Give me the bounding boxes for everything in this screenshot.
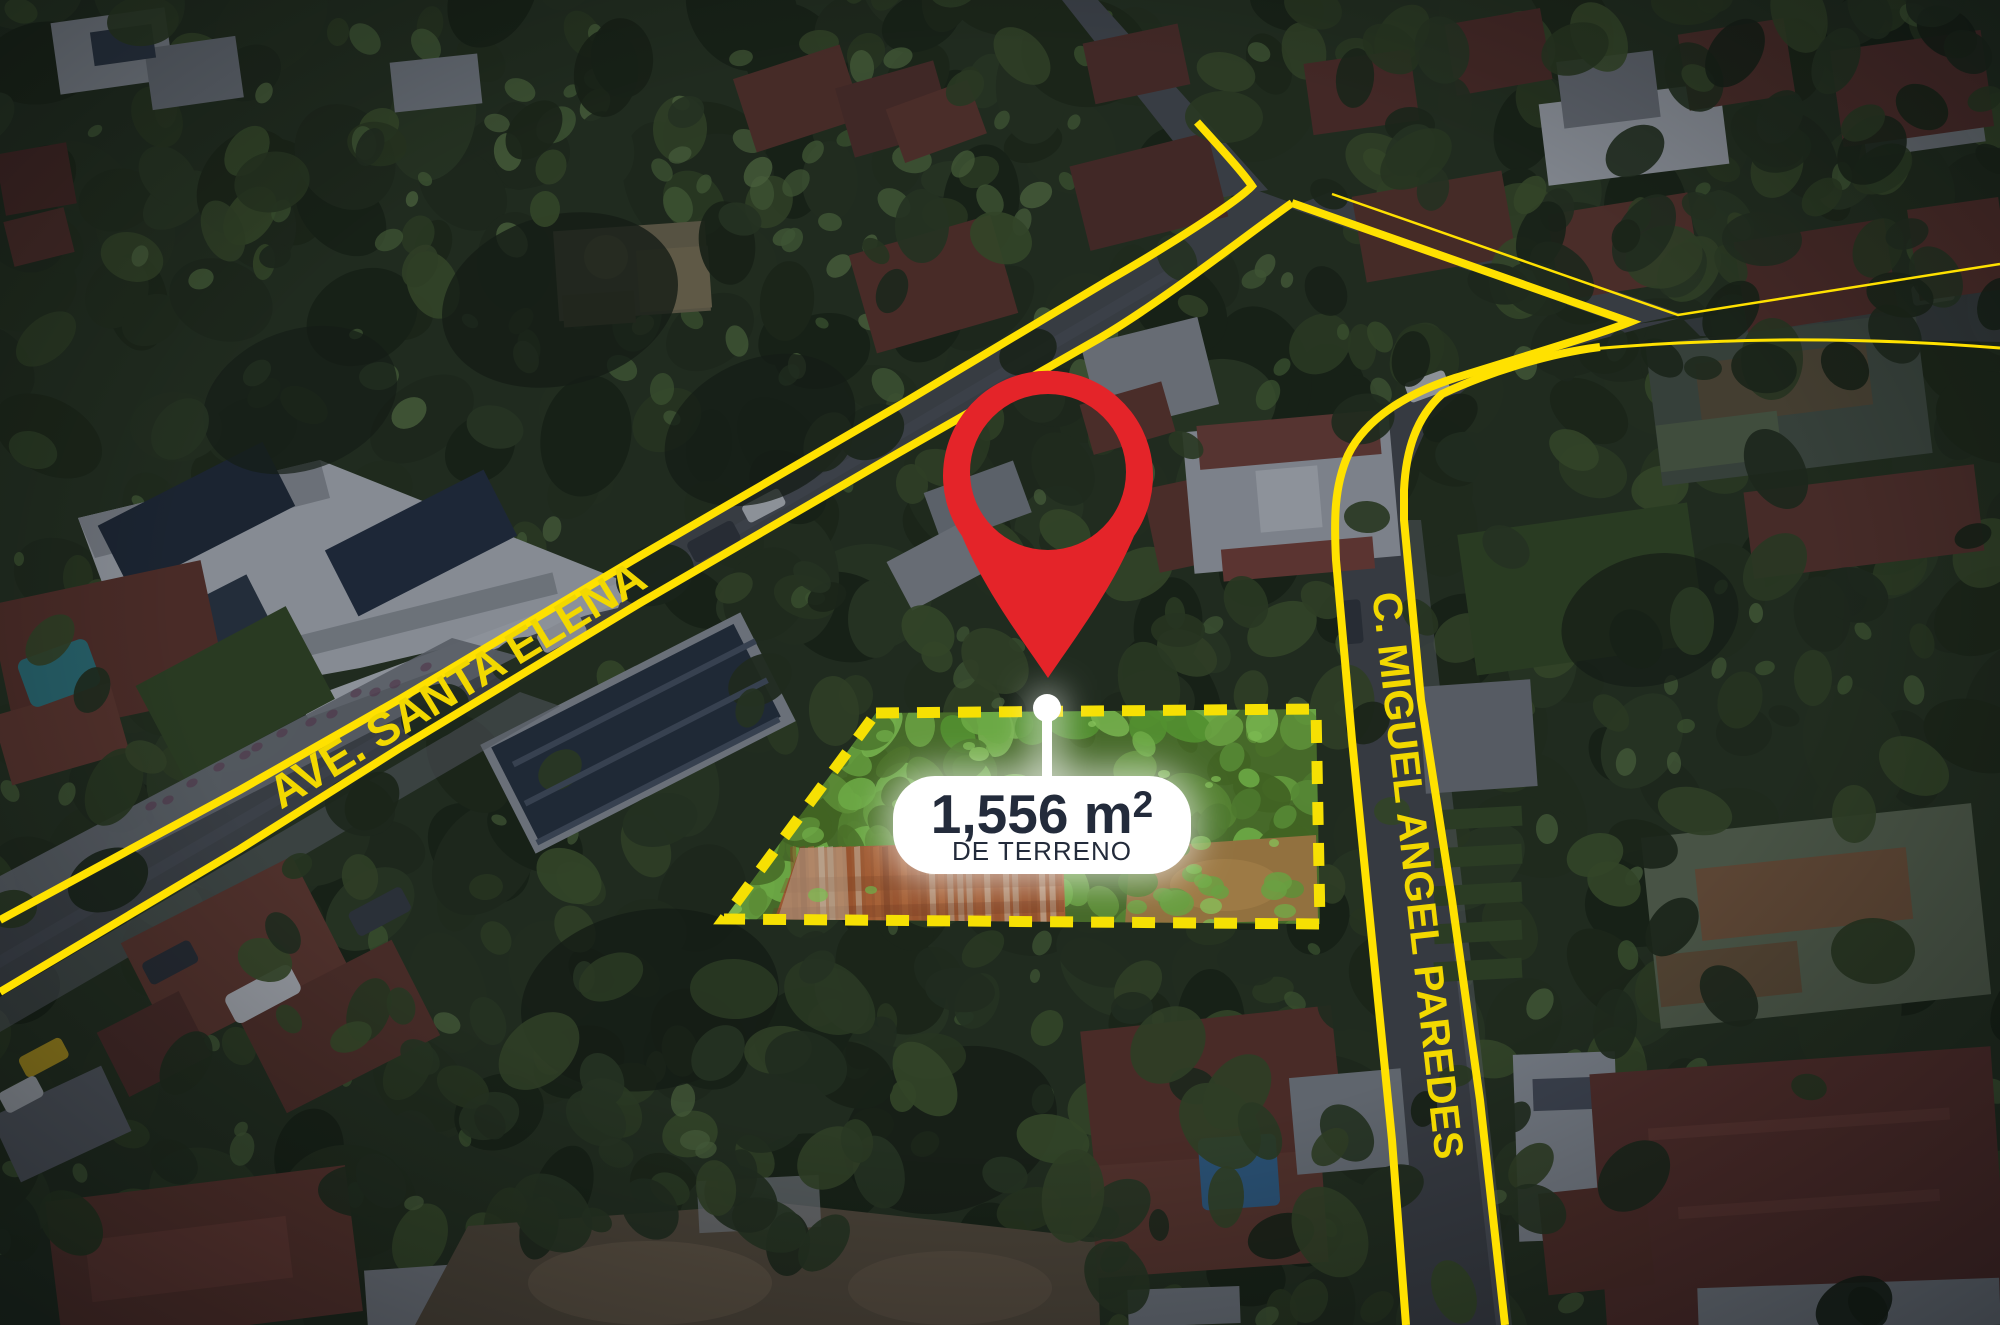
svg-text:DE TERRENO: DE TERRENO (952, 836, 1132, 866)
